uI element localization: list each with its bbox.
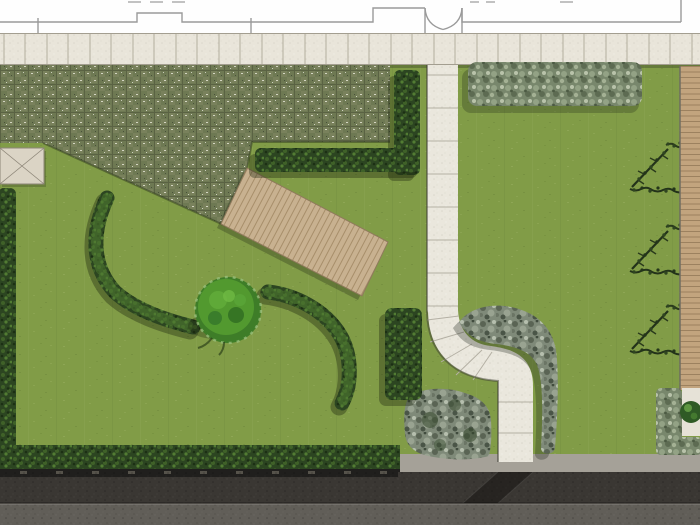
house-interior-area <box>0 0 700 35</box>
table-symbol <box>0 148 46 187</box>
corner-patio-pad <box>680 388 700 436</box>
garden-plan-canvas <box>0 0 700 525</box>
terrace-paver-band <box>0 33 700 65</box>
hedge-street-row <box>0 445 400 470</box>
timber-deck-strip <box>680 66 700 390</box>
hedge-mid-block <box>379 308 422 406</box>
garden-plan-rendering <box>0 0 700 525</box>
shrub-band-top-right <box>462 62 642 113</box>
hedge-left-boundary <box>0 188 16 450</box>
sidewalk <box>0 503 700 525</box>
